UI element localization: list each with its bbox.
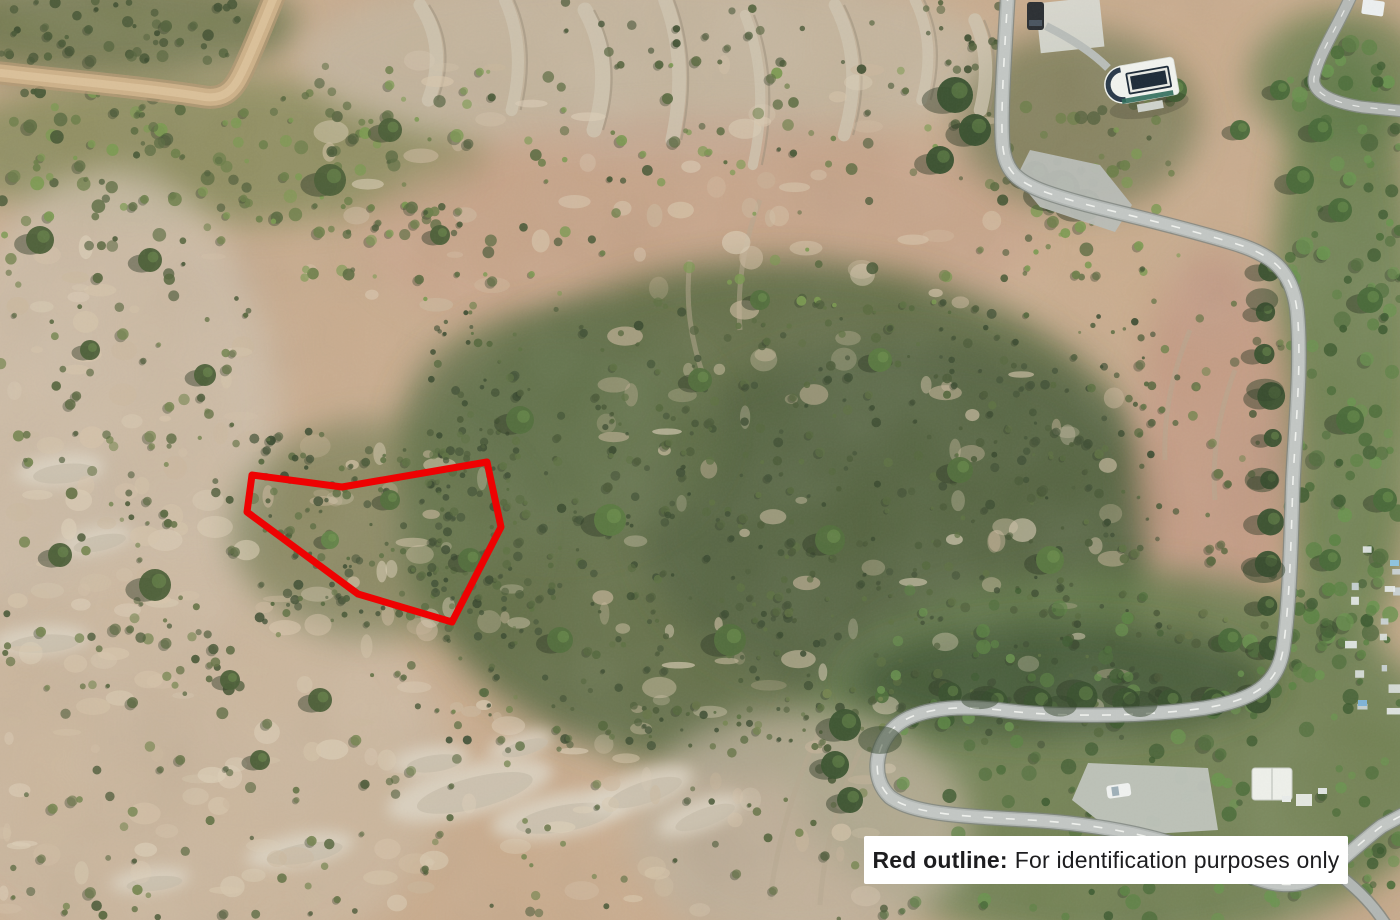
- photo-grain: [0, 0, 1400, 920]
- label-regular-text: For identification purposes only: [1015, 847, 1340, 874]
- aerial-photograph: [0, 0, 1400, 920]
- aerial-photo-stage: Red outline: For identification purposes…: [0, 0, 1400, 920]
- label-bold-text: Red outline:: [872, 847, 1007, 874]
- identification-label: Red outline: For identification purposes…: [864, 836, 1348, 884]
